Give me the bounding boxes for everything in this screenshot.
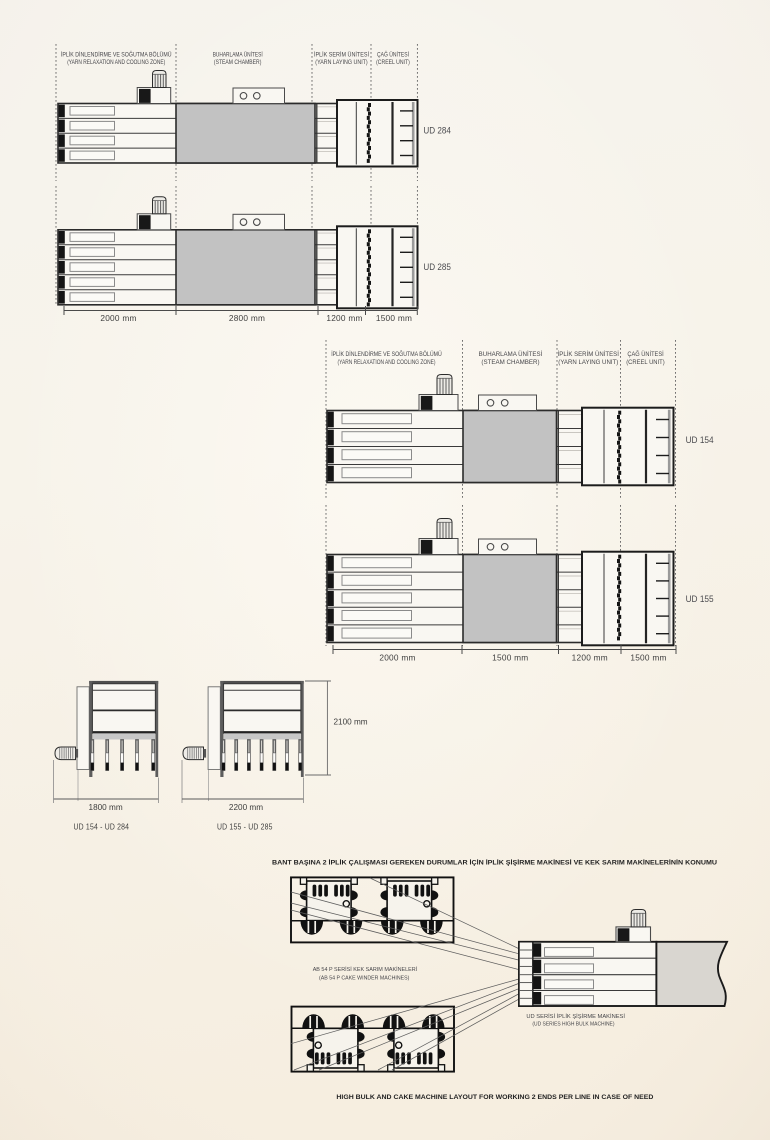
svg-text:2100 mm: 2100 mm	[334, 718, 368, 727]
svg-text:İPLİK SERİM ÜNİTESİ: İPLİK SERİM ÜNİTESİ	[558, 351, 620, 358]
svg-text:(STEAM CHAMBER): (STEAM CHAMBER)	[481, 359, 539, 366]
svg-text:UD 285: UD 285	[423, 262, 451, 272]
svg-text:(UD SERIES HIGH BULK MACHINE): (UD SERIES HIGH BULK MACHINE)	[532, 1022, 614, 1028]
svg-text:İPLİK DİNLENDİRME VE SOĞUTMA B: İPLİK DİNLENDİRME VE SOĞUTMA BÖLÜMÜ	[331, 351, 442, 358]
svg-text:BUHARLAMA ÜNİTESİ: BUHARLAMA ÜNİTESİ	[213, 51, 263, 58]
svg-text:2000 mm: 2000 mm	[379, 653, 415, 663]
svg-text:1200 mm: 1200 mm	[572, 653, 608, 663]
svg-text:UD SERİSİ İPLİK ŞİŞİRME MAKİNE: UD SERİSİ İPLİK ŞİŞİRME MAKİNESİ	[526, 1013, 625, 1020]
svg-text:UD 154 - UD 284: UD 154 - UD 284	[74, 822, 130, 832]
svg-text:(CREEL UNIT): (CREEL UNIT)	[626, 359, 665, 366]
svg-text:UD 155 - UD 285: UD 155 - UD 285	[217, 822, 273, 832]
svg-text:ÇAĞ ÜNİTESİ: ÇAĞ ÜNİTESİ	[627, 351, 664, 358]
svg-text:İPLİK DİNLENDİRME VE SOĞUTMA B: İPLİK DİNLENDİRME VE SOĞUTMA BÖLÜMÜ	[61, 51, 172, 58]
svg-text:AB 54 P SERİSİ KEK SARIM MAKİN: AB 54 P SERİSİ KEK SARIM MAKİNELERİ	[313, 966, 418, 973]
svg-text:(CREEL UNIT): (CREEL UNIT)	[376, 59, 410, 66]
svg-text:BANT BAŞINA 2 İPLİK ÇALIŞMASI: BANT BAŞINA 2 İPLİK ÇALIŞMASI GEREKEN DU…	[272, 858, 717, 867]
svg-text:(YARN RELAXATION AND COOLING Z: (YARN RELAXATION AND COOLING ZONE)	[67, 59, 165, 66]
svg-text:BUHARLAMA ÜNİTESİ: BUHARLAMA ÜNİTESİ	[479, 351, 543, 358]
svg-text:2000 mm: 2000 mm	[100, 313, 136, 323]
svg-text:1500 mm: 1500 mm	[630, 653, 666, 663]
svg-text:1500 mm: 1500 mm	[376, 313, 412, 323]
svg-text:UD 154: UD 154	[686, 435, 714, 445]
svg-text:2200 mm: 2200 mm	[229, 803, 263, 812]
svg-text:(STEAM CHAMBER): (STEAM CHAMBER)	[214, 59, 262, 66]
svg-text:1500 mm: 1500 mm	[492, 653, 528, 663]
svg-text:1800 mm: 1800 mm	[89, 803, 123, 812]
svg-text:1200 mm: 1200 mm	[326, 313, 362, 323]
svg-text:UD 155: UD 155	[686, 594, 714, 604]
svg-text:(YARN LAYING UNIT): (YARN LAYING UNIT)	[315, 59, 367, 66]
svg-text:(YARN RELAXATION AND COOLING Z: (YARN RELAXATION AND COOLING ZONE)	[338, 359, 436, 366]
svg-text:ÇAĞ ÜNİTESİ: ÇAĞ ÜNİTESİ	[377, 51, 409, 58]
svg-text:HIGH BULK AND CAKE MACHINE LAY: HIGH BULK AND CAKE MACHINE LAYOUT FOR WO…	[336, 1094, 653, 1101]
svg-text:İPLİK SERİM ÜNİTESİ: İPLİK SERİM ÜNİTESİ	[314, 51, 369, 58]
svg-text:UD 284: UD 284	[423, 126, 451, 136]
svg-text:(AB 54 P CAKE WINDER MACHINES): (AB 54 P CAKE WINDER MACHINES)	[319, 976, 409, 982]
svg-text:(YARN LAYING UNIT): (YARN LAYING UNIT)	[558, 359, 618, 366]
svg-text:2800 mm: 2800 mm	[229, 313, 265, 323]
